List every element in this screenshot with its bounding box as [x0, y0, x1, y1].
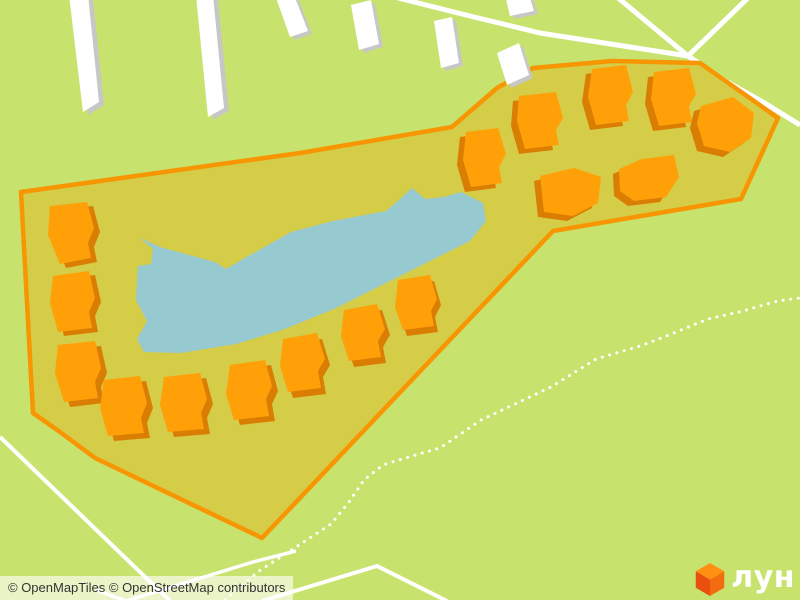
map-canvas[interactable]: [0, 0, 800, 600]
attribution-osm-link[interactable]: © OpenStreetMap contributors: [109, 580, 286, 595]
orange-building[interactable]: [50, 271, 101, 336]
lun-logo-cube-icon: [695, 562, 725, 597]
orange-building-roof: [100, 376, 147, 436]
attribution-openmaptiles-link[interactable]: © OpenMapTiles: [8, 580, 105, 595]
orange-building[interactable]: [280, 333, 330, 398]
orange-building[interactable]: [55, 341, 107, 407]
orange-building[interactable]: [160, 373, 213, 437]
orange-building-roof: [280, 333, 325, 392]
orange-building-roof: [226, 360, 272, 420]
orange-building[interactable]: [511, 92, 563, 154]
orange-building[interactable]: [341, 304, 390, 367]
orange-building[interactable]: [582, 65, 633, 130]
orange-building-roof: [55, 341, 101, 402]
orange-building-roof: [395, 275, 437, 330]
orange-building[interactable]: [226, 360, 278, 425]
orange-building-roof: [517, 92, 563, 149]
map-viewport: © OpenMapTiles © OpenStreetMap contribut…: [0, 0, 800, 600]
lun-logo-text: лун: [731, 563, 795, 597]
orange-building[interactable]: [645, 68, 696, 131]
map-attribution: © OpenMapTiles © OpenStreetMap contribut…: [0, 576, 293, 600]
orange-building-roof: [463, 128, 506, 187]
orange-building-roof: [651, 68, 696, 126]
orange-building[interactable]: [457, 128, 506, 192]
lun-logo[interactable]: лун: [695, 562, 795, 597]
orange-building-roof: [341, 304, 385, 361]
orange-building-roof: [50, 271, 95, 332]
orange-building-roof: [588, 65, 633, 125]
orange-building[interactable]: [100, 376, 153, 441]
orange-building-roof: [160, 373, 207, 432]
